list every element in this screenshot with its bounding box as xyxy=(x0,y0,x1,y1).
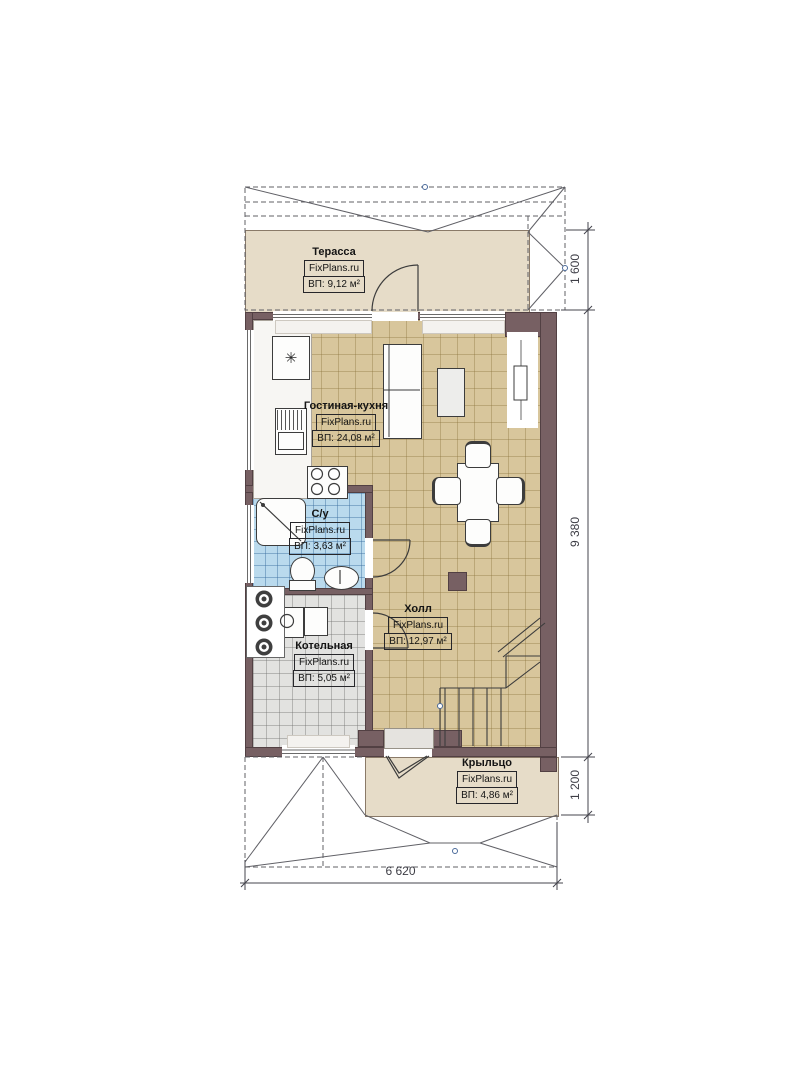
brand-box: FixPlans.ru xyxy=(316,414,376,431)
room-name: Холл xyxy=(404,603,432,615)
room-label-porch: Крыльцо FixPlans.ru ВП: 4,86 м² xyxy=(437,757,537,804)
column xyxy=(448,572,467,591)
porch-corner-block xyxy=(540,757,557,772)
brand-box: FixPlans.ru xyxy=(294,654,354,671)
window-left-bathroom xyxy=(244,505,254,583)
dim-house-width: 6 620 xyxy=(358,864,443,878)
room-label-boiler: Котельная FixPlans.ru ВП: 5,05 м² xyxy=(274,640,374,687)
area-box: ВП: 24,08 м² xyxy=(312,430,379,447)
chair-right xyxy=(496,477,525,505)
dim-house-length: 9 380 xyxy=(568,497,582,567)
room-label-living: Гостиная-кухня FixPlans.ru ВП: 24,08 м² xyxy=(281,400,411,447)
room-name: С/у xyxy=(311,508,328,520)
brand-box: FixPlans.ru xyxy=(290,522,350,539)
area-box: ВП: 9,12 м² xyxy=(303,276,365,293)
chair-bottom xyxy=(465,519,491,547)
fridge-snowflake-icon: ✳ xyxy=(285,351,298,366)
window-sill-1 xyxy=(275,320,372,334)
brand-box: FixPlans.ru xyxy=(304,260,364,277)
boiler-window-sill xyxy=(287,735,350,748)
toilet-tank xyxy=(289,580,316,591)
room-label-bathroom: С/у FixPlans.ru ВП: 3,63 м² xyxy=(270,508,370,555)
area-box: ВП: 3,63 м² xyxy=(289,538,351,555)
room-name: Гостиная-кухня xyxy=(304,400,388,412)
boiler-unit xyxy=(304,607,328,636)
wall-right xyxy=(540,312,557,757)
coffee-table xyxy=(437,368,465,417)
stove xyxy=(307,466,348,499)
window-sill-2 xyxy=(422,320,505,334)
sink xyxy=(324,566,359,590)
window-niche-right xyxy=(507,332,538,428)
entry-recess xyxy=(384,728,434,749)
chair-left xyxy=(432,477,461,505)
room-label-hall: Холл FixPlans.ru ВП: 12,97 м² xyxy=(368,603,468,650)
terrace-door-opening xyxy=(372,312,418,321)
room-label-terrace: Терасса FixPlans.ru ВП: 9,12 м² xyxy=(284,246,384,293)
entry-stub-left xyxy=(358,730,384,747)
window-left-living xyxy=(244,330,254,470)
dim-porch-depth: 1 200 xyxy=(568,750,582,820)
room-name: Терасса xyxy=(312,246,356,258)
entry-stub-right xyxy=(432,730,462,747)
room-name: Котельная xyxy=(295,640,353,652)
area-box: ВП: 12,97 м² xyxy=(384,633,451,650)
brand-box: FixPlans.ru xyxy=(457,771,517,788)
fridge: ✳ xyxy=(272,336,310,380)
dining-table xyxy=(457,463,499,522)
area-box: ВП: 4,86 м² xyxy=(456,787,518,804)
floor-plan-canvas: ✳ xyxy=(0,0,792,1080)
dim-terrace-depth: 1 600 xyxy=(568,234,582,304)
brand-box: FixPlans.ru xyxy=(388,617,448,634)
room-name: Крыльцо xyxy=(462,757,512,769)
area-box: ВП: 5,05 м² xyxy=(293,670,355,687)
chair-top xyxy=(465,441,491,468)
